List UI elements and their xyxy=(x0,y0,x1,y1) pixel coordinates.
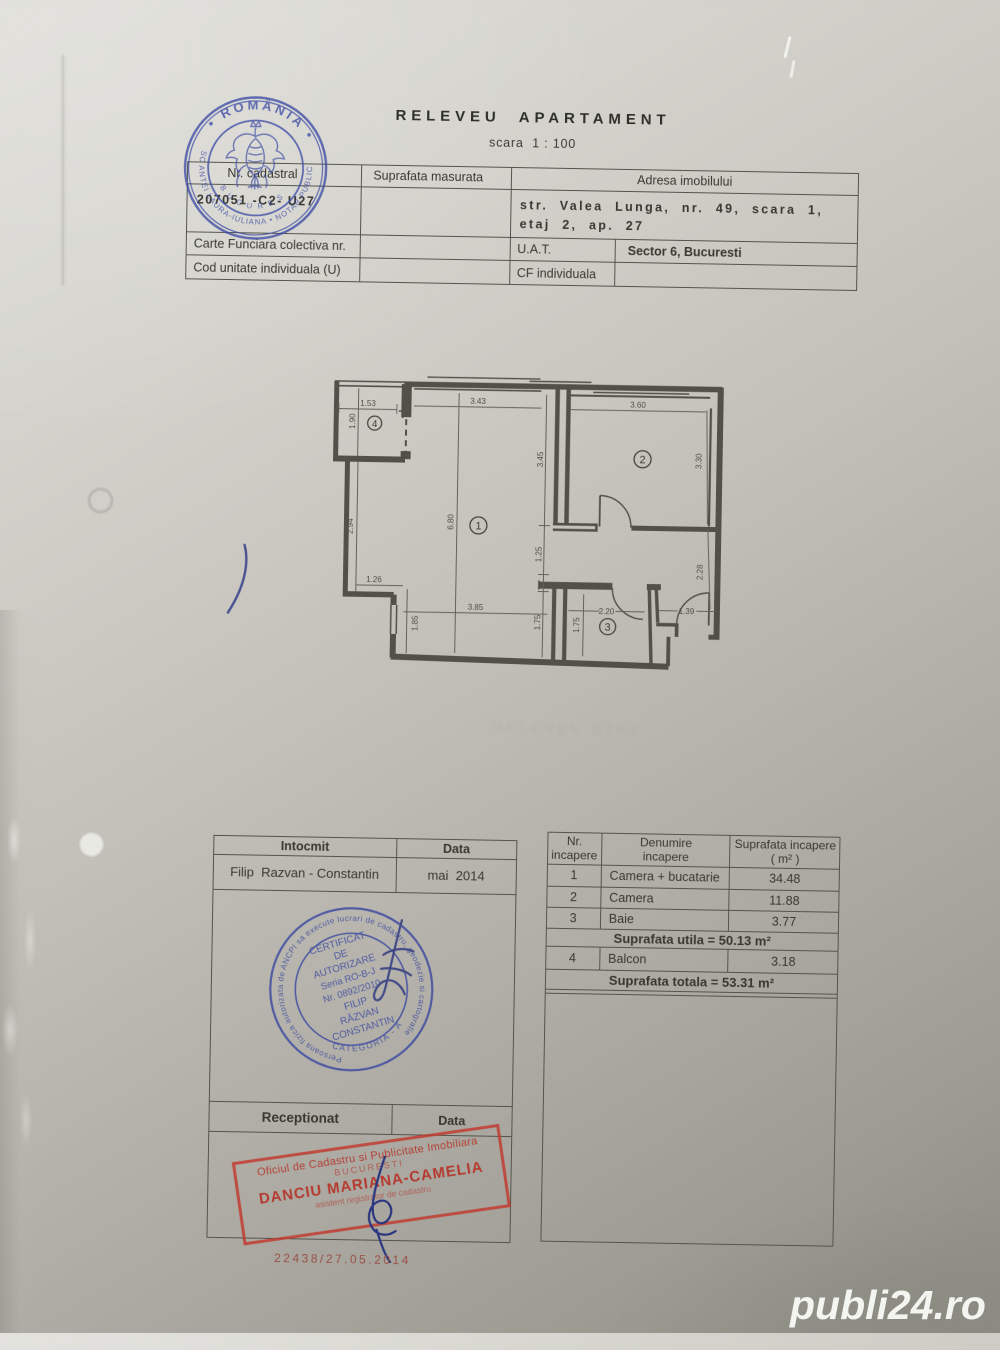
svg-text:2.94: 2.94 xyxy=(346,518,355,534)
svg-text:1.53: 1.53 xyxy=(360,399,376,408)
svg-text:3: 3 xyxy=(604,622,610,634)
svg-text:2: 2 xyxy=(639,454,645,466)
svg-text:1.39: 1.39 xyxy=(679,607,695,616)
svg-text:6.80: 6.80 xyxy=(446,514,455,530)
svg-text:4: 4 xyxy=(372,419,378,430)
svg-text:3.60: 3.60 xyxy=(630,401,646,410)
svg-text:3.30: 3.30 xyxy=(694,453,703,469)
svg-text:2.28: 2.28 xyxy=(695,564,704,580)
svg-text:3.85: 3.85 xyxy=(468,603,484,612)
svg-text:1.75: 1.75 xyxy=(533,614,542,630)
svg-text:1.85: 1.85 xyxy=(411,615,420,631)
svg-text:3.45: 3.45 xyxy=(536,451,545,467)
svg-text:1.26: 1.26 xyxy=(366,575,382,584)
svg-text:3.43: 3.43 xyxy=(470,397,486,406)
svg-text:1: 1 xyxy=(475,520,481,532)
svg-text:1.75: 1.75 xyxy=(572,617,581,633)
svg-text:2.20: 2.20 xyxy=(599,607,615,616)
svg-text:1.90: 1.90 xyxy=(348,413,357,429)
svg-text:1.25: 1.25 xyxy=(534,546,543,562)
